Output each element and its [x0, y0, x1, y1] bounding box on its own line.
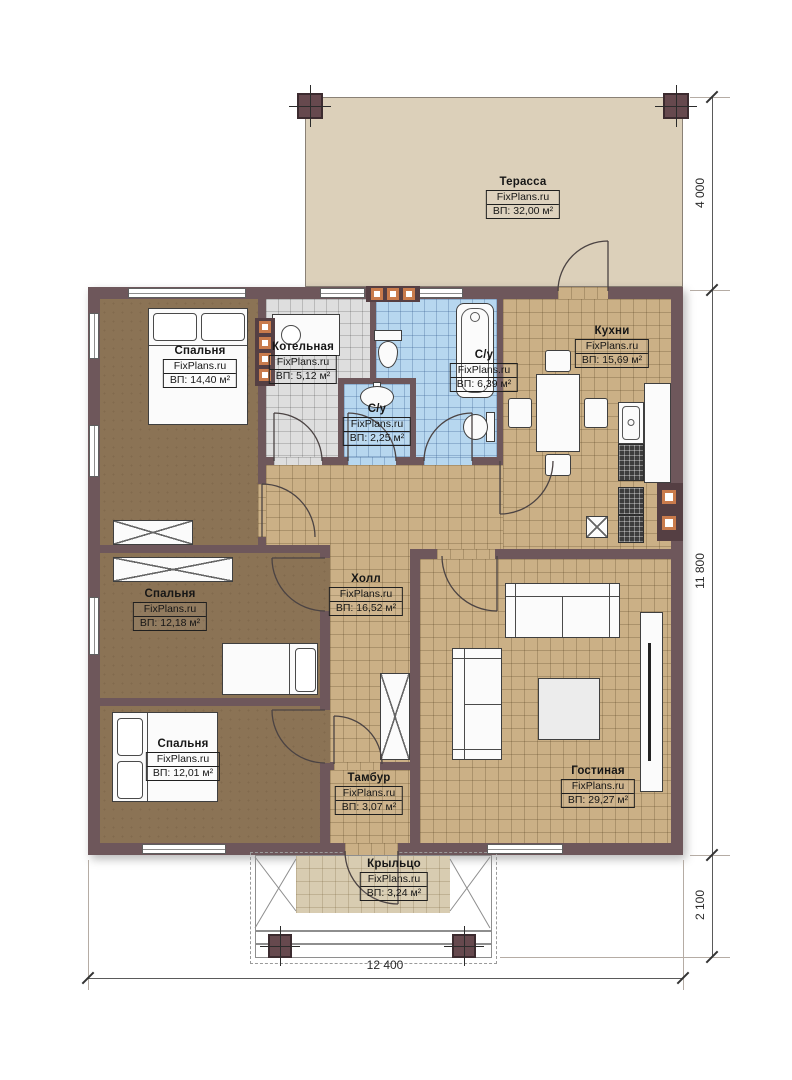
- faucet-icon: [628, 419, 635, 426]
- room-area: ВП: 2,25 м²: [344, 432, 410, 445]
- toilet-tank: [374, 330, 402, 341]
- room-area: ВП: 3,07 м²: [336, 801, 402, 814]
- chair: [508, 398, 532, 428]
- window: [89, 597, 99, 655]
- sofa-arm-line: [609, 584, 610, 637]
- room-label-bedroom-1: Спальня FixPlans.ruВП: 14,40 м²: [163, 345, 237, 388]
- wall: [88, 545, 330, 553]
- oven: [618, 487, 644, 515]
- room-area: ВП: 29,27 м²: [562, 794, 634, 807]
- terrace-post: [297, 93, 323, 119]
- window: [487, 844, 563, 854]
- kitchen-sink: [618, 402, 644, 444]
- single-bed: [222, 643, 318, 695]
- vent-icon: [259, 321, 271, 333]
- dimension-label-4000: 4 000: [693, 163, 707, 223]
- vent-icon: [403, 288, 415, 300]
- sofa: [452, 648, 502, 760]
- room-label-hall: Холл FixPlans.ruВП: 16,52 м²: [329, 573, 403, 616]
- room-name: Спальня: [163, 345, 237, 357]
- room-area: ВП: 12,18 м²: [134, 617, 206, 630]
- terrace-post: [663, 93, 689, 119]
- dimension-label-2100: 2 100: [693, 875, 707, 935]
- door-opening: [348, 457, 396, 465]
- room-label-kitchen: Кухни FixPlans.ruВП: 15,69 м²: [575, 325, 649, 368]
- room-name: Гостиная: [561, 765, 635, 777]
- room-area: ВП: 6,39 м²: [451, 378, 517, 391]
- door-opening: [558, 287, 608, 299]
- watermark: FixPlans.ru: [336, 787, 402, 801]
- stove: [618, 444, 644, 481]
- watermark: FixPlans.ru: [147, 753, 219, 767]
- room-label-bathroom-small: С/у FixPlans.ruВП: 2,25 м²: [343, 403, 411, 446]
- vent-block: [366, 286, 420, 302]
- blanket-line: [289, 644, 290, 694]
- room-name: Крыльцо: [360, 858, 428, 870]
- closet: [380, 673, 410, 760]
- pillow: [201, 313, 245, 341]
- vent-icon: [662, 490, 676, 504]
- dining-table: [536, 374, 580, 452]
- kitchen-counter: [644, 383, 671, 483]
- room-area: ВП: 3,24 м²: [361, 887, 427, 900]
- toilet-bowl: [463, 414, 488, 440]
- watermark: FixPlans.ru: [451, 364, 517, 378]
- room-name: Кухни: [575, 325, 649, 337]
- watermark: FixPlans.ru: [164, 360, 236, 374]
- room-label-porch: Крыльцо FixPlans.ruВП: 3,24 м²: [360, 858, 428, 901]
- room-name: Спальня: [146, 738, 220, 750]
- watermark: FixPlans.ru: [270, 356, 336, 370]
- room-label-living: Гостиная FixPlans.ruВП: 29,27 м²: [561, 765, 635, 808]
- window: [89, 425, 99, 477]
- door-opening: [424, 457, 472, 465]
- vent-block: [657, 483, 683, 541]
- room-area: ВП: 16,52 м²: [330, 602, 402, 615]
- vent-icon: [387, 288, 399, 300]
- vent-icon: [662, 516, 676, 530]
- room-label-bedroom-2: Спальня FixPlans.ruВП: 12,18 м²: [133, 588, 207, 631]
- extension-line: [500, 957, 730, 958]
- watermark: FixPlans.ru: [344, 418, 410, 432]
- chair: [584, 398, 608, 428]
- extension-line: [88, 860, 89, 990]
- room-name: Котельная: [269, 341, 337, 353]
- watermark: FixPlans.ru: [361, 873, 427, 887]
- wardrobe: [113, 520, 193, 545]
- window: [142, 844, 226, 854]
- vent-icon: [371, 288, 383, 300]
- coffee-table: [538, 678, 600, 740]
- door-opening: [334, 762, 380, 770]
- door-opening: [258, 484, 266, 537]
- dimension-line-right: [712, 97, 713, 957]
- wall: [88, 698, 330, 706]
- room-name: Спальня: [133, 588, 207, 600]
- window: [128, 288, 246, 298]
- dimension-line-bottom: [88, 978, 683, 979]
- tv-stand: [640, 612, 663, 792]
- extension-line: [683, 860, 684, 990]
- door-opening: [437, 549, 495, 559]
- room-name: Терасса: [486, 176, 560, 188]
- pillow: [117, 718, 143, 756]
- dimension-label-12400: 12 400: [335, 958, 435, 972]
- room-area: ВП: 5,12 м²: [270, 370, 336, 383]
- chair: [545, 454, 571, 476]
- pillow: [117, 761, 143, 799]
- room-name: Холл: [329, 573, 403, 585]
- room-area: ВП: 15,69 м²: [576, 354, 648, 367]
- room-label-boiler: Котельная FixPlans.ruВП: 5,12 м²: [269, 341, 337, 384]
- porch-post: [268, 934, 292, 958]
- door-opening: [345, 843, 398, 855]
- room-name: С/у: [343, 403, 411, 415]
- drain-icon: [470, 312, 480, 322]
- room-label-bathroom-big: С/у FixPlans.ruВП: 6,39 м²: [450, 349, 518, 392]
- watermark: FixPlans.ru: [330, 588, 402, 602]
- pillow: [295, 648, 316, 692]
- room-area: ВП: 32,00 м²: [487, 205, 559, 218]
- room-area: ВП: 14,40 м²: [164, 374, 236, 387]
- door-opening: [320, 710, 330, 763]
- room-label-terrace: Терасса FixPlans.ruВП: 32,00 м²: [486, 176, 560, 219]
- room-label-tambour: Тамбур FixPlans.ruВП: 3,07 м²: [335, 772, 403, 815]
- sofa: [505, 583, 620, 638]
- window: [89, 313, 99, 359]
- wall: [410, 549, 420, 843]
- sofa-arm-line: [453, 749, 501, 750]
- window: [418, 288, 463, 298]
- porch-post: [452, 934, 476, 958]
- sofa-seat-line: [562, 596, 563, 637]
- floor-hatch: [586, 516, 608, 538]
- chair: [545, 350, 571, 372]
- watermark: FixPlans.ru: [576, 340, 648, 354]
- dimension-label-11800: 11 800: [693, 541, 707, 601]
- wardrobe: [113, 557, 233, 582]
- sofa-arm-line: [453, 658, 501, 659]
- pillow: [153, 313, 197, 341]
- room-name: С/у: [450, 349, 518, 361]
- sofa-arm-line: [515, 584, 516, 637]
- tv-icon: [648, 643, 651, 761]
- sofa-seat-line: [464, 704, 501, 705]
- window: [320, 288, 365, 298]
- room-name: Тамбур: [335, 772, 403, 784]
- watermark: FixPlans.ru: [562, 780, 634, 794]
- room-label-bedroom-3: Спальня FixPlans.ruВП: 12,01 м²: [146, 738, 220, 781]
- door-opening: [274, 457, 322, 465]
- oven: [618, 515, 644, 543]
- room-area: ВП: 12,01 м²: [147, 767, 219, 780]
- watermark: FixPlans.ru: [134, 603, 206, 617]
- floor-plan: Терасса FixPlans.ruВП: 32,00 м² Кухни Fi…: [0, 0, 792, 1080]
- watermark: FixPlans.ru: [487, 191, 559, 205]
